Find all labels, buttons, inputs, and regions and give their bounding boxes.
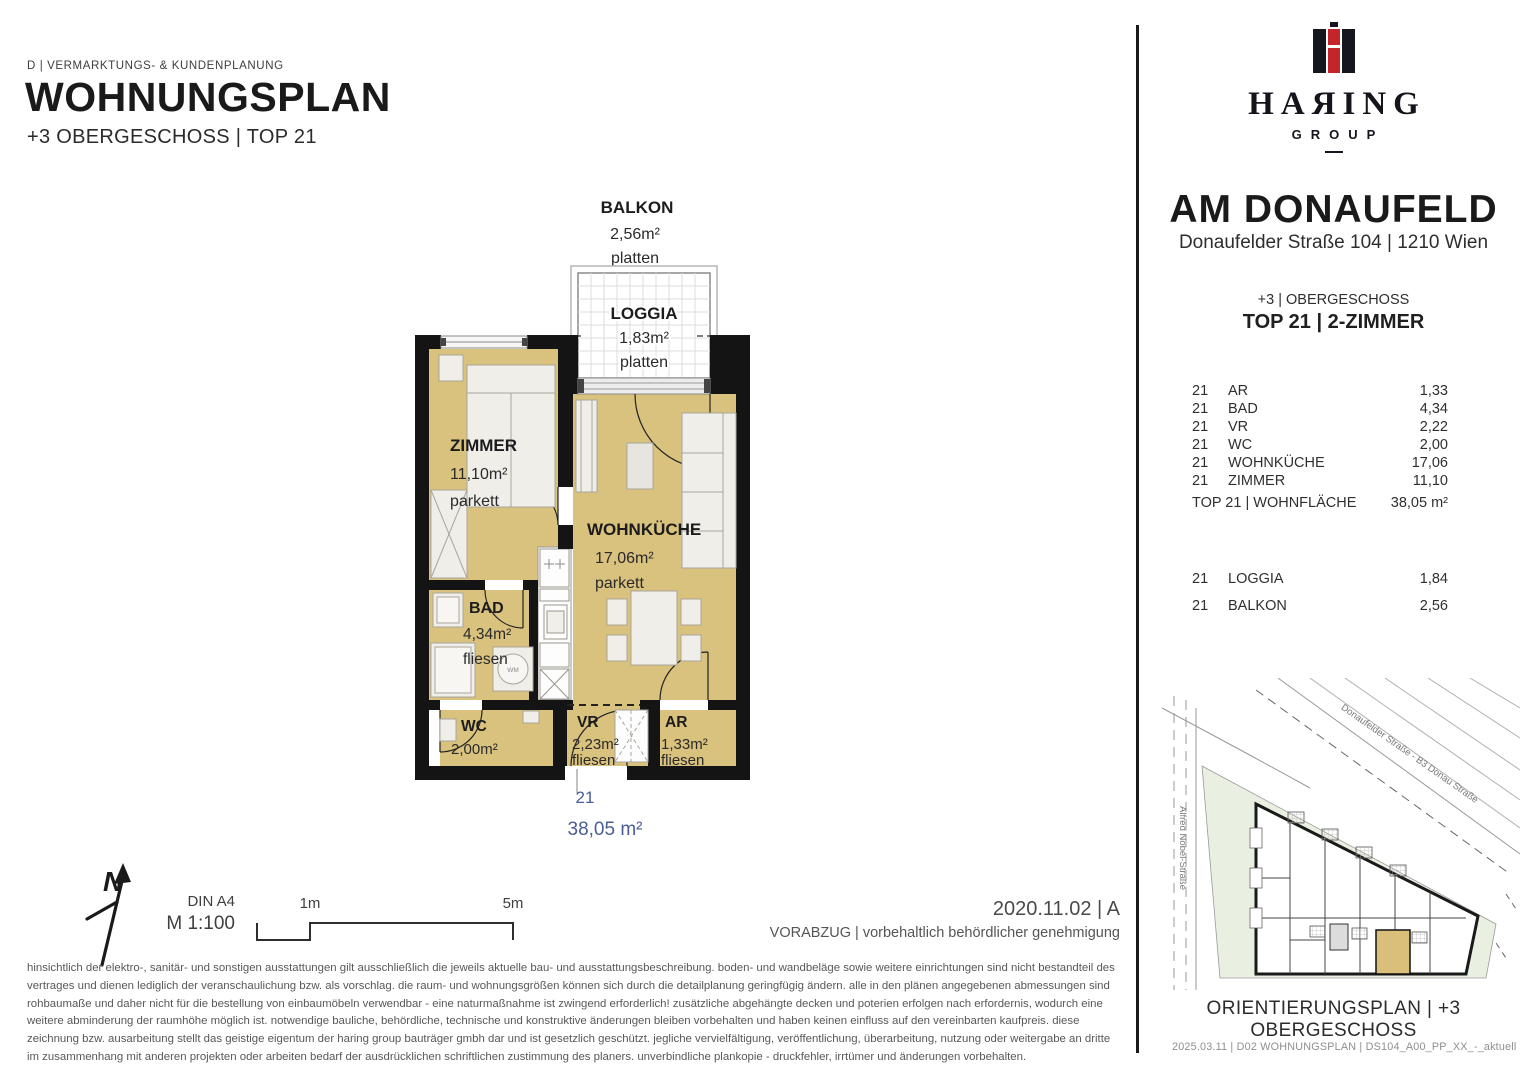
building-outline: [1250, 804, 1478, 974]
svg-text:BALKON: BALKON: [601, 198, 674, 217]
version-block: 2020.11.02 | A VORABZUG | vorbehaltlich …: [760, 898, 1120, 941]
outdoor-table: 21 LOGGIA 1,84 21 BALKON 2,56: [1192, 570, 1448, 624]
project-title: AM DONAUFELD: [1140, 188, 1527, 232]
table-row: 21 ZIMMER 11,10: [1192, 472, 1448, 490]
svg-text:WOHNKÜCHE: WOHNKÜCHE: [587, 520, 701, 539]
svg-text:17,06m²: 17,06m²: [595, 550, 654, 567]
haring-logo-icon: [1311, 22, 1357, 78]
table-row: 21 AR 1,33: [1192, 382, 1448, 400]
svg-text:WM: WM: [507, 667, 519, 674]
kitchen-counter: [538, 547, 571, 700]
disclaimer-text: hinsichtlich der elektro-, sanitär- und …: [27, 960, 1120, 1067]
revision-date: 2020.11.02 | A: [760, 898, 1120, 921]
svg-text:WC: WC: [461, 718, 487, 735]
brand-group: GROUP: [1140, 127, 1527, 142]
svg-text:21: 21: [576, 788, 595, 807]
project-address: Donaufelder Straße 104 | 1210 Wien: [1140, 232, 1527, 254]
svg-text:LOGGIA: LOGGIA: [610, 304, 677, 323]
highlighted-unit: [1376, 930, 1410, 974]
svg-text:5m: 5m: [503, 895, 524, 912]
svg-text:38,05 m²: 38,05 m²: [568, 819, 643, 840]
svg-text:fliesen: fliesen: [661, 752, 704, 769]
plan-sheet: D | VERMARKTUNGS- & KUNDENPLANUNG WOHNUN…: [0, 0, 1527, 1080]
table-row: 21 BAD 4,34: [1192, 400, 1448, 418]
orientation-plan: Donaufelder Straße - B3 Donau Straße Alf…: [1160, 678, 1520, 990]
table-row: 21 LOGGIA 1,84: [1192, 570, 1448, 588]
orientation-caption: ORIENTIERUNGSPLAN | +3 OBERGESCHOSS: [1140, 998, 1527, 1042]
department-line: D | VERMARKTUNGS- & KUNDENPLANUNG: [27, 60, 284, 72]
table-row: 21 BALKON 2,56: [1192, 597, 1448, 615]
svg-text:11,10m²: 11,10m²: [450, 466, 508, 483]
haring-logo: HAЯING GROUP: [1140, 22, 1527, 153]
paper-size: DIN A4: [140, 893, 235, 910]
room-table: 21 AR 1,33 21 BAD 4,34 21 VR 2,22 21 WC …: [1192, 382, 1448, 513]
svg-text:VR: VR: [577, 714, 599, 731]
svg-text:ZIMMER: ZIMMER: [450, 436, 517, 455]
table-row: 21 WC 2,00: [1192, 436, 1448, 454]
svg-text:parkett: parkett: [595, 575, 644, 592]
svg-text:1m: 1m: [300, 895, 321, 912]
svg-text:4,34m²: 4,34m²: [463, 626, 511, 643]
svg-text:fliesen: fliesen: [463, 651, 508, 668]
map-scale: M 1:100: [140, 913, 235, 935]
project-top-line: TOP 21 | 2-ZIMMER: [1140, 311, 1527, 334]
street-label-left: Alfred Nobel-Straße: [1177, 806, 1188, 890]
svg-text:fliesen: fliesen: [572, 752, 615, 769]
panel-divider: [1136, 25, 1139, 1053]
balkon-label: BALKON 2,56m² platten: [601, 198, 674, 267]
project-floor-line: +3 | OBERGESCHOSS: [1140, 292, 1527, 308]
document-title: WOHNUNGSPLAN: [25, 74, 391, 121]
table-row: 21 VR 2,22: [1192, 418, 1448, 436]
drawing-footer: 2025.03.11 | D02 WOHNUNGSPLAN | DS104_A0…: [1172, 1041, 1517, 1053]
logo-underscore: [1325, 151, 1343, 153]
loggia-room: LOGGIA 1,83m² platten: [555, 266, 723, 385]
svg-text:platten: platten: [611, 250, 659, 267]
status-line: VORABZUG | vorbehaltlich behördlicher ge…: [760, 925, 1120, 941]
table-total-row: TOP 21 | WOHNFLÄCHE 38,05 m²: [1192, 493, 1448, 513]
svg-text:2,56m²: 2,56m²: [610, 226, 660, 243]
scale-info: DIN A4 M 1:100: [140, 893, 235, 935]
svg-text:1,33m²: 1,33m²: [661, 736, 708, 753]
svg-text:BAD: BAD: [469, 600, 504, 617]
document-subtitle: +3 OBERGESCHOSS | TOP 21: [27, 126, 317, 149]
svg-text:2,23m²: 2,23m²: [572, 736, 619, 753]
svg-text:parkett: parkett: [450, 493, 499, 510]
street-label-main: Donaufelder Straße - B3 Donau Straße: [1339, 702, 1480, 806]
svg-text:2,00m²: 2,00m²: [451, 741, 498, 758]
svg-text:platten: platten: [620, 354, 668, 371]
brand-name: HAЯING: [1140, 86, 1527, 123]
floorplan-drawing: BALKON 2,56m² platten LOGGIA 1,83m² plat…: [405, 195, 755, 845]
table-row: 21 WOHNKÜCHE 17,06: [1192, 454, 1448, 472]
svg-text:1,83m²: 1,83m²: [619, 330, 669, 347]
scale-bar: 1m 5m: [240, 890, 540, 948]
svg-text:AR: AR: [665, 714, 687, 731]
